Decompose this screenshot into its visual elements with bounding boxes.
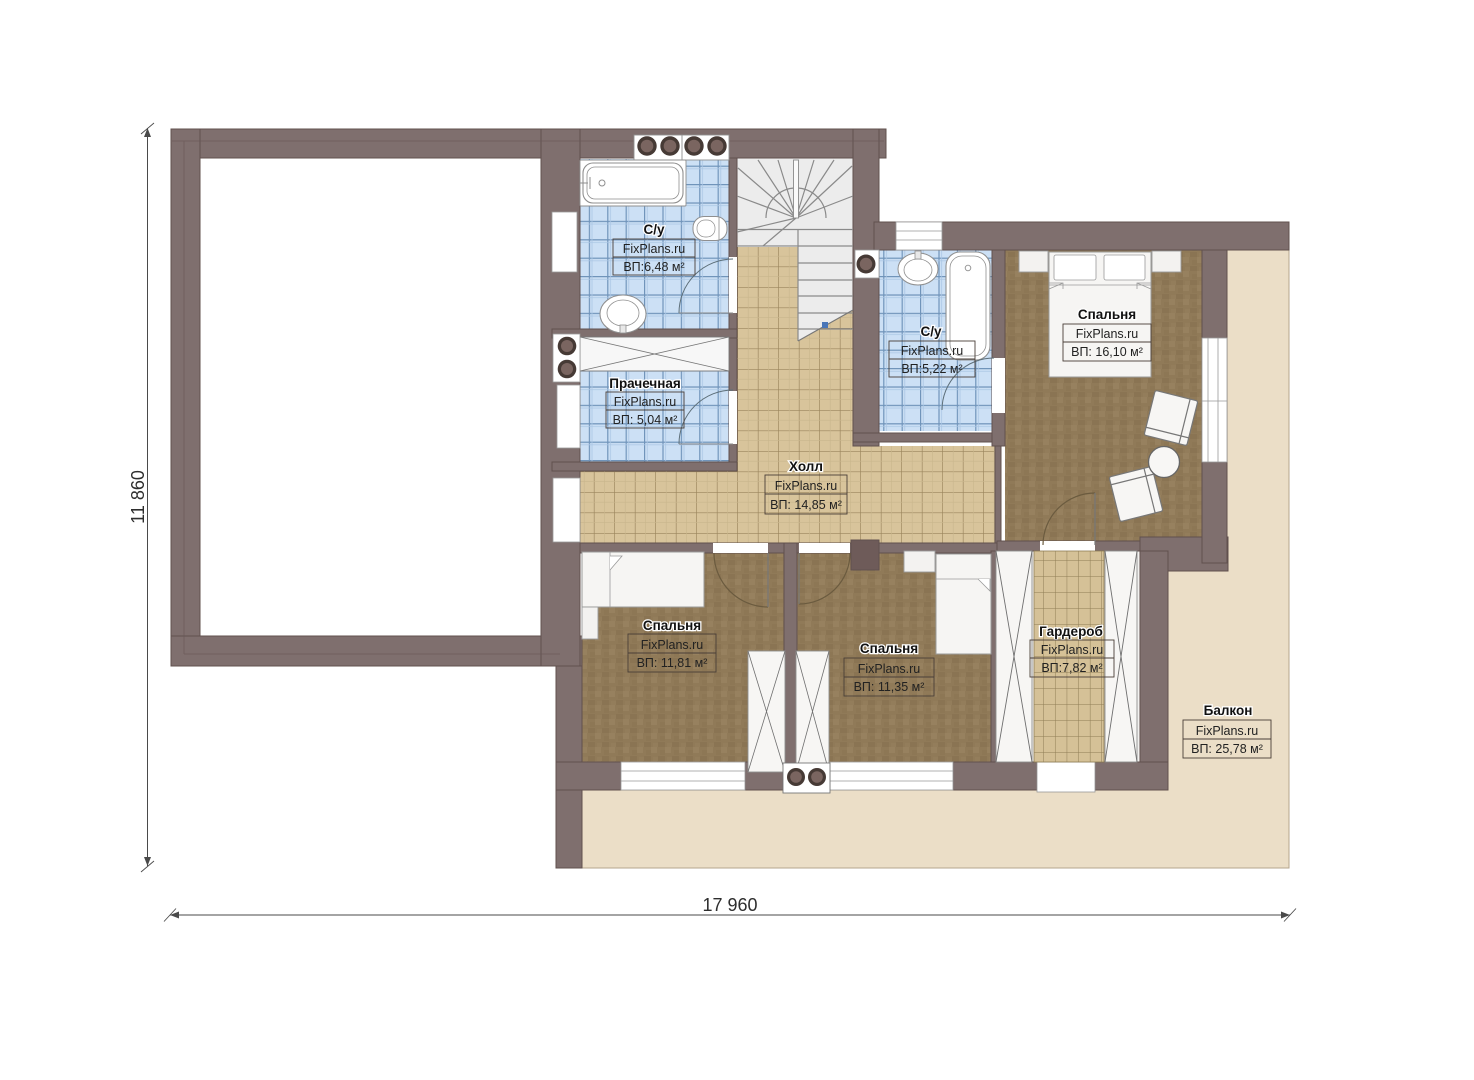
svg-text:FixPlans.ru: FixPlans.ru xyxy=(1076,327,1139,341)
svg-text:FixPlans.ru: FixPlans.ru xyxy=(775,479,838,493)
svg-text:Гардероб: Гардероб xyxy=(1039,624,1103,639)
svg-text:ВП: 11,81 м²: ВП: 11,81 м² xyxy=(637,656,708,670)
svg-text:С/у: С/у xyxy=(920,324,942,339)
svg-text:Спальня: Спальня xyxy=(643,618,701,633)
svg-text:11 860: 11 860 xyxy=(128,470,148,524)
svg-text:FixPlans.ru: FixPlans.ru xyxy=(623,242,686,256)
svg-text:ВП: 5,04 м²: ВП: 5,04 м² xyxy=(613,413,678,427)
svg-text:Спальня: Спальня xyxy=(860,641,918,656)
svg-text:Холл: Холл xyxy=(789,459,823,474)
svg-text:ВП: 16,10 м²: ВП: 16,10 м² xyxy=(1071,345,1143,359)
svg-text:ВП: 25,78 м²: ВП: 25,78 м² xyxy=(1191,742,1263,756)
svg-text:ВП: 11,35 м²: ВП: 11,35 м² xyxy=(854,680,925,694)
svg-text:ВП: 14,85 м²: ВП: 14,85 м² xyxy=(770,498,842,512)
svg-text:ВП:7,82 м²: ВП:7,82 м² xyxy=(1041,661,1102,675)
svg-text:Спальня: Спальня xyxy=(1078,307,1136,322)
svg-text:ВП:5,22 м²: ВП:5,22 м² xyxy=(901,362,962,376)
svg-text:FixPlans.ru: FixPlans.ru xyxy=(1041,643,1104,657)
svg-text:С/у: С/у xyxy=(643,222,665,237)
svg-text:FixPlans.ru: FixPlans.ru xyxy=(901,344,964,358)
svg-text:ВП:6,48 м²: ВП:6,48 м² xyxy=(623,260,684,274)
svg-text:FixPlans.ru: FixPlans.ru xyxy=(641,638,704,652)
svg-text:Прачечная: Прачечная xyxy=(609,376,681,391)
svg-text:17 960: 17 960 xyxy=(702,895,757,915)
svg-text:Балкон: Балкон xyxy=(1204,703,1253,718)
svg-text:FixPlans.ru: FixPlans.ru xyxy=(858,662,921,676)
svg-text:FixPlans.ru: FixPlans.ru xyxy=(1196,724,1259,738)
svg-text:FixPlans.ru: FixPlans.ru xyxy=(614,395,677,409)
